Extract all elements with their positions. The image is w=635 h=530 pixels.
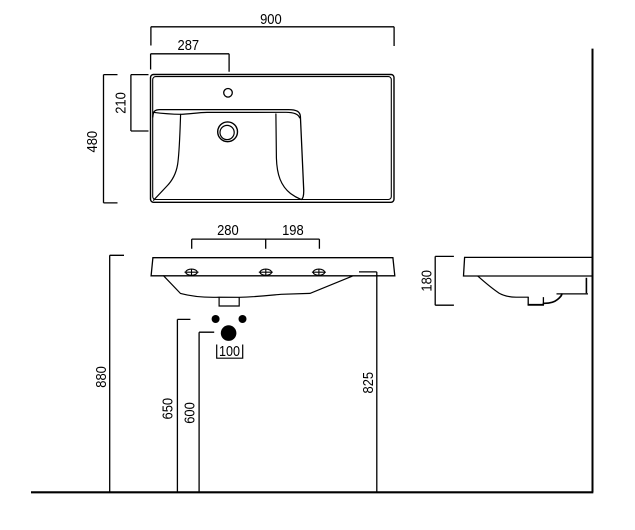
svg-text:880: 880 — [93, 366, 110, 388]
svg-text:198: 198 — [282, 222, 304, 239]
svg-text:650: 650 — [159, 398, 176, 420]
svg-text:825: 825 — [360, 372, 377, 394]
svg-text:100: 100 — [219, 343, 240, 360]
svg-text:600: 600 — [182, 402, 199, 424]
svg-text:900: 900 — [260, 11, 282, 28]
svg-text:180: 180 — [419, 270, 436, 292]
svg-text:480: 480 — [84, 131, 101, 153]
svg-text:280: 280 — [217, 222, 239, 239]
svg-text:210: 210 — [113, 92, 130, 114]
svg-text:287: 287 — [178, 37, 200, 54]
